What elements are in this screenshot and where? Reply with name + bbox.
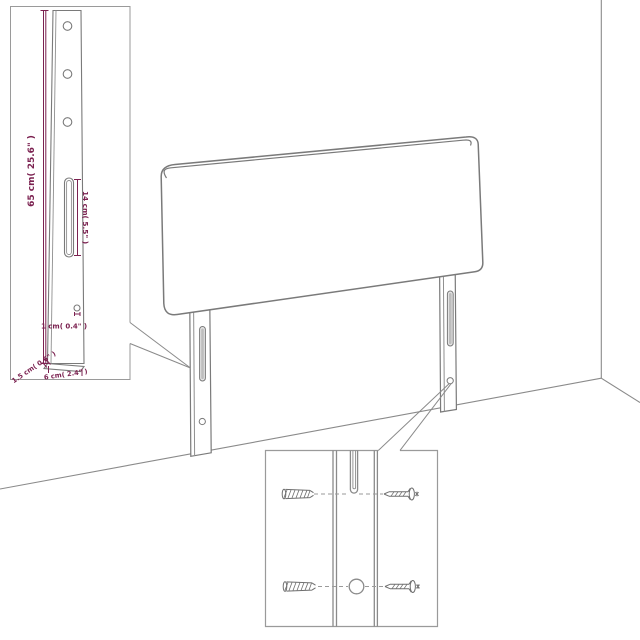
inset-mounting-box (266, 451, 438, 627)
right-leg-hole (447, 378, 453, 384)
label-hole-size: 1 cm( 0.4" ) (41, 323, 87, 331)
leg-slot-outer (65, 178, 74, 257)
label-leg-height: 65 cm( 25.6" ) (27, 135, 37, 207)
product-diagram: 65 cm( 25.6" ) 14 cm( 5.5" ) 1 cm( 0.4" … (0, 0, 640, 640)
leg-bottom-hole (74, 305, 80, 311)
leg-hole-top (63, 22, 72, 31)
headboard-panel (161, 137, 483, 315)
headboard-left-leg (190, 304, 211, 456)
leg-hole-middle (63, 70, 72, 79)
inset-leg-dimensions: 65 cm( 25.6" ) 14 cm( 5.5" ) 1 cm( 0.4" … (10, 7, 130, 385)
panel-outline (161, 137, 483, 315)
right-leg-slot-inner (449, 293, 452, 344)
inset-mounting-detail (266, 451, 438, 627)
label-slot-length: 14 cm( 5.5" ) (81, 191, 90, 244)
callout-left-leg (130, 323, 191, 369)
floor-line-right (601, 378, 640, 402)
mounting-hole (349, 579, 364, 594)
leg-hole-lower (63, 118, 72, 127)
left-leg-slot-inner (201, 329, 204, 380)
left-leg-hole (199, 418, 205, 424)
